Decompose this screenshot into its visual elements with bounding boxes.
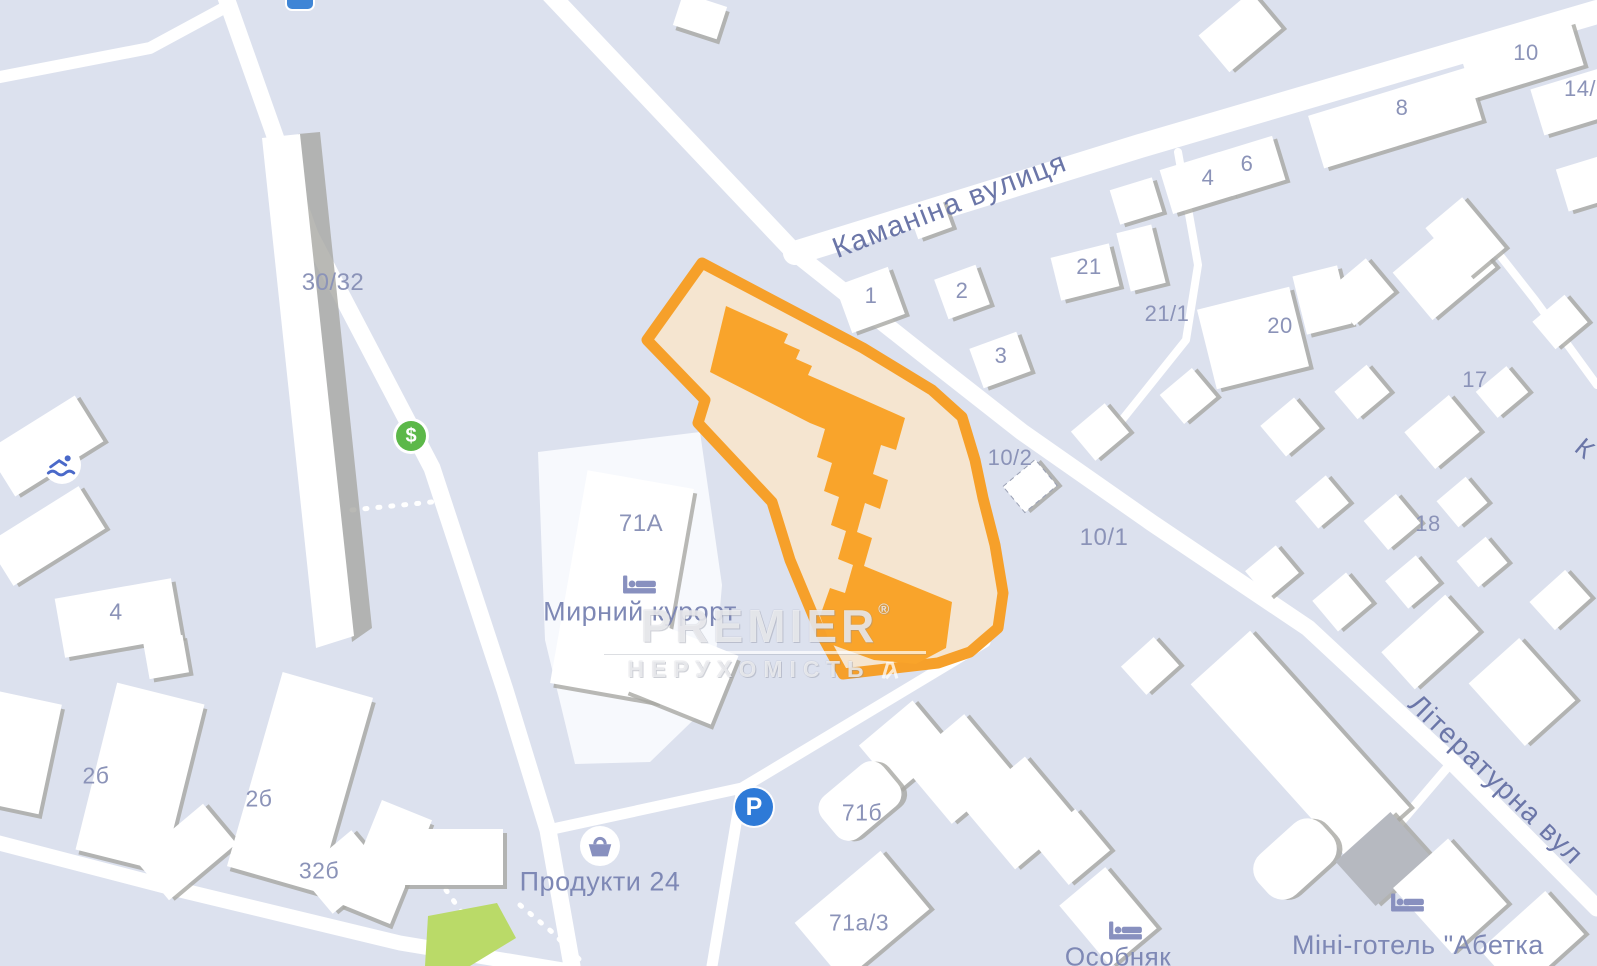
house-number-label: 30/32 <box>302 269 365 297</box>
house-number-label: 10/2 <box>988 445 1033 471</box>
house-number-label: 2 <box>956 278 969 304</box>
place-label-osobnyak[interactable]: Особняк <box>1065 942 1171 966</box>
map-canvas[interactable] <box>0 0 1597 966</box>
place-label-mini-hotel[interactable]: Міні-готель "Абетка <box>1292 930 1544 961</box>
house-number-label: 4 <box>1202 165 1215 191</box>
house-number-label: 32б <box>299 858 339 885</box>
bed-icon[interactable] <box>1108 918 1144 944</box>
house-number-label: 2б <box>83 763 110 790</box>
house-number-label: 10 <box>1513 40 1538 66</box>
house-number-label: 71а/3 <box>829 910 889 937</box>
house-number-label: 14/ <box>1564 76 1596 102</box>
house-number-label: 71б <box>842 800 882 827</box>
house-number-label: 21 <box>1076 254 1101 280</box>
swimming-icon[interactable] <box>43 446 81 484</box>
house-number-label: 20 <box>1267 313 1292 339</box>
house-number-label: 8 <box>1396 95 1409 121</box>
bus-stop-icon[interactable] <box>287 0 313 9</box>
parking-icon[interactable]: P <box>735 788 773 826</box>
watermark: PREMIER® НЕРУХОМІСТЬ <box>600 586 930 683</box>
house-number-label: 17 <box>1462 367 1487 393</box>
house-number-label: 10/1 <box>1080 524 1129 552</box>
watermark-brand: PREMIER® <box>600 586 930 650</box>
place-label-produkty-24[interactable]: Продукти 24 <box>520 867 681 898</box>
house-number-label: 3 <box>995 343 1008 369</box>
house-number-label: 1 <box>865 283 878 309</box>
atm-icon[interactable]: $ <box>396 421 426 451</box>
shopping-basket-icon[interactable] <box>580 826 620 866</box>
house-number-label: 2б <box>246 786 273 813</box>
bed-icon[interactable] <box>1390 890 1426 916</box>
watermark-subtitle: НЕРУХОМІСТЬ <box>627 656 870 683</box>
house-number-label: 4 <box>109 599 122 626</box>
house-number-label: 21/1 <box>1145 301 1190 327</box>
house-number-label: 6 <box>1241 151 1254 177</box>
house-number-label: 18 <box>1415 511 1440 537</box>
house-number-label: 71А <box>619 510 663 538</box>
map[interactable]: Каманіна вулиця Літературна вул К Мирний… <box>0 0 1597 966</box>
registered-mark: ® <box>878 601 889 618</box>
watermark-logo-icon <box>877 657 903 683</box>
